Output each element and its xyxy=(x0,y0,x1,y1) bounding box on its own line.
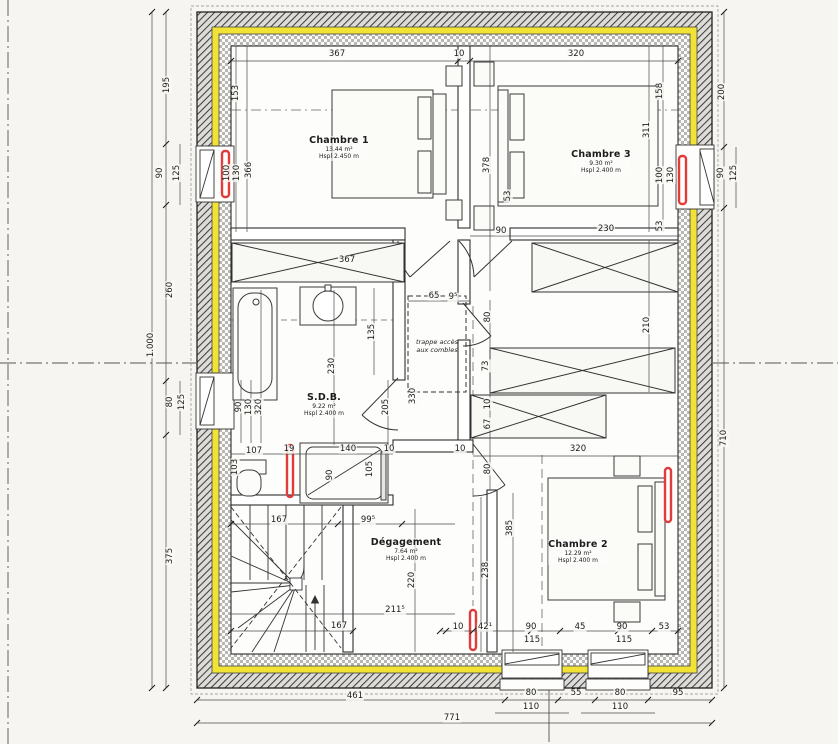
bed-chambre3 xyxy=(474,62,658,230)
bed-chambre2 xyxy=(548,456,665,622)
attic-hatch-annotation: trappe accès aux combles xyxy=(414,338,460,354)
window-right xyxy=(676,145,714,209)
window-left-bottom xyxy=(196,373,234,429)
floorplan-drawing xyxy=(0,0,838,744)
washbasin xyxy=(300,285,356,325)
window-bottom-left xyxy=(500,650,564,690)
shower xyxy=(300,443,388,503)
floorplan-canvas: 36710320195901252601.0008012537520090125… xyxy=(0,0,838,744)
bathtub xyxy=(233,288,277,400)
window-bottom-right xyxy=(586,650,650,690)
